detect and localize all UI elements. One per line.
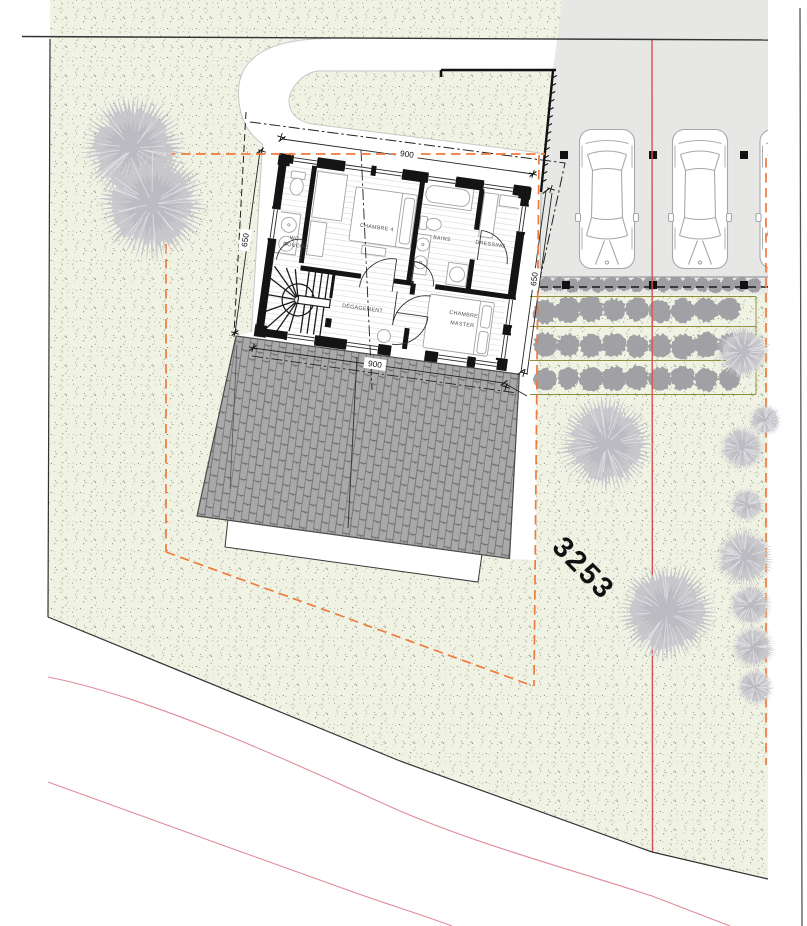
svg-text:650: 650 [529, 271, 540, 286]
svg-text:900: 900 [400, 149, 415, 160]
svg-text:650: 650 [240, 232, 251, 247]
svg-text:900: 900 [368, 359, 383, 370]
